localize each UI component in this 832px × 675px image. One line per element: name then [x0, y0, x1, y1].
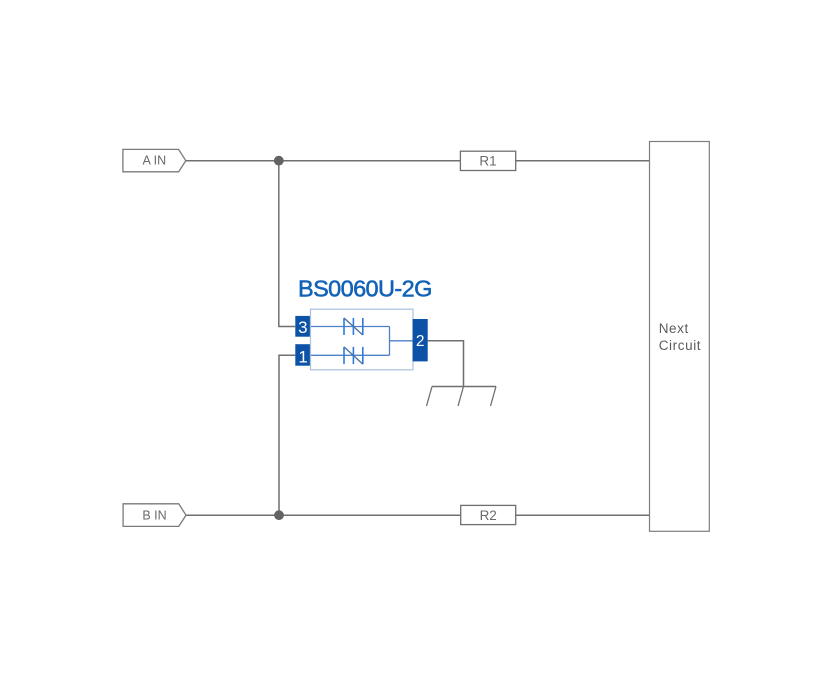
svg-text:Circuit: Circuit [659, 338, 701, 353]
svg-text:2: 2 [416, 333, 425, 350]
svg-text:R1: R1 [479, 154, 496, 169]
svg-text:Next: Next [659, 321, 689, 336]
svg-text:3: 3 [298, 318, 307, 337]
svg-text:R2: R2 [480, 508, 497, 523]
svg-text:B IN: B IN [142, 508, 166, 522]
svg-text:A IN: A IN [142, 154, 166, 168]
svg-text:1: 1 [298, 348, 307, 367]
svg-text:BS0060U-2G: BS0060U-2G [298, 275, 432, 301]
